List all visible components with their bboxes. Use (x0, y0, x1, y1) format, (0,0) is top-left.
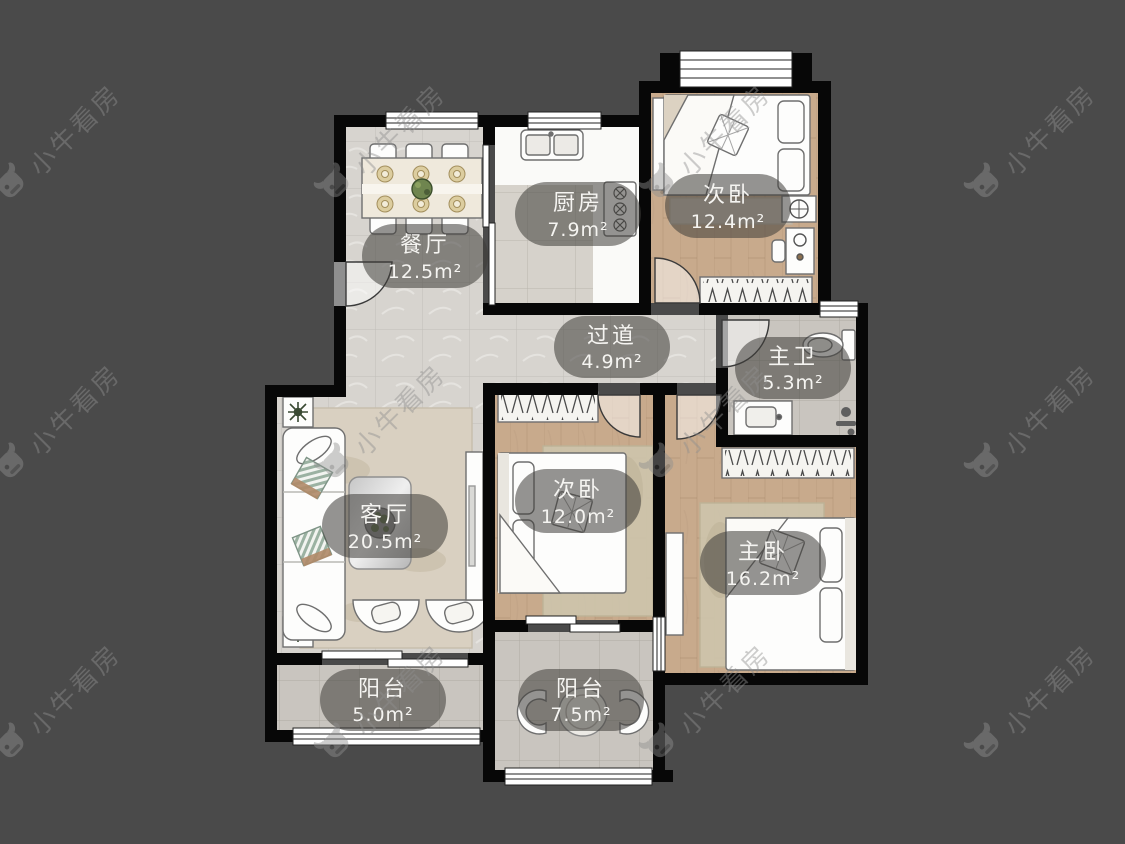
room-area: 4.9m² (581, 351, 642, 373)
window (528, 112, 601, 129)
floorplan-svg: 餐厅 12.5m² 厨房 7.9m² 次卧 12.4m² 过道 4.9m² (0, 0, 1125, 844)
room-name: 餐厅 (400, 233, 450, 258)
label-dining: 餐厅 12.5m² (362, 224, 488, 288)
window (505, 768, 652, 785)
label-hallway: 过道 4.9m² (554, 316, 670, 378)
label-bedroom-top: 次卧 12.4m² (665, 174, 791, 238)
room-name: 厨房 (553, 191, 603, 216)
window (653, 617, 665, 671)
room-area: 12.4m² (691, 211, 765, 233)
window (820, 301, 858, 317)
floorplan-canvas: 餐厅 12.5m² 厨房 7.9m² 次卧 12.4m² 过道 4.9m² (0, 0, 1125, 844)
room-name: 次卧 (703, 183, 753, 208)
plant (288, 402, 308, 422)
room-name: 主卫 (768, 345, 818, 370)
tv-screen (469, 486, 475, 566)
pillow (778, 101, 804, 143)
desk (786, 228, 814, 274)
label-balcony-right: 阳台 7.5m² (518, 669, 644, 731)
entry-door-leaf (334, 262, 346, 306)
label-living: 客厅 20.5m² (322, 494, 448, 558)
room-area: 7.9m² (547, 219, 608, 241)
room-area: 12.0m² (541, 506, 615, 528)
label-bedroom-mid: 次卧 12.0m² (515, 469, 641, 533)
desk-chair (772, 240, 785, 262)
room-area: 20.5m² (348, 531, 422, 553)
room-area: 7.5m² (550, 704, 611, 726)
room-name: 阳台 (556, 677, 606, 702)
pillow (820, 588, 842, 642)
room-area: 16.2m² (726, 568, 800, 590)
table-plant (412, 179, 432, 199)
room-area: 12.5m² (388, 261, 462, 283)
label-master: 主卧 16.2m² (700, 531, 826, 595)
label-kitchen: 厨房 7.9m² (515, 182, 641, 246)
master-tv-panel (666, 533, 683, 635)
bay-window (680, 51, 792, 87)
room-name: 过道 (587, 324, 637, 349)
room-name: 次卧 (553, 478, 603, 503)
room-name: 客厅 (360, 503, 410, 528)
room-name: 主卧 (738, 540, 788, 565)
